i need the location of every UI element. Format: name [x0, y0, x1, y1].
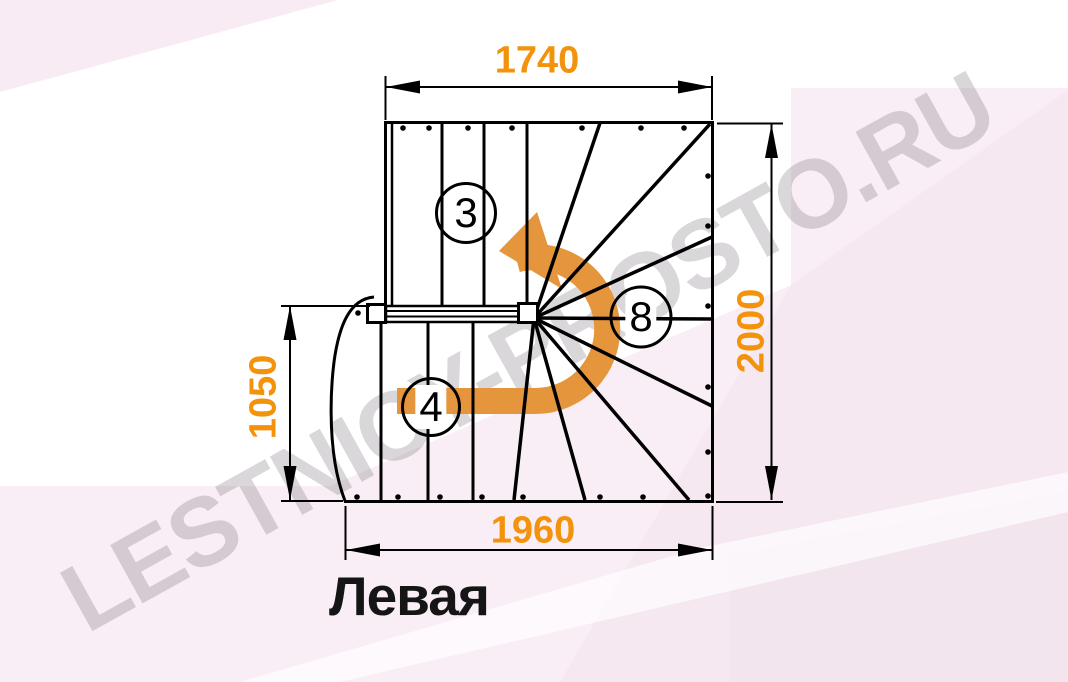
- dim-arrowhead: [765, 124, 778, 158]
- curved-side-board: [331, 297, 374, 501]
- dimension-top: [386, 76, 713, 120]
- stair-plan-drawing: [0, 0, 1068, 682]
- upper-flight-step-count: 3: [450, 191, 481, 235]
- dim-arrowhead: [678, 81, 712, 94]
- dimension-top-value: 1740: [495, 40, 580, 83]
- dimension-right-value: 2000: [731, 289, 774, 374]
- winder-step-count: 8: [625, 295, 656, 339]
- newel-post: [519, 304, 538, 323]
- lower-flight-step-count: 4: [415, 385, 446, 429]
- handrail-beam: [368, 304, 538, 323]
- dim-arrowhead: [678, 544, 712, 557]
- dim-arrowhead: [765, 466, 778, 500]
- dim-arrowhead: [284, 466, 297, 500]
- dimension-left-value: 1050: [243, 355, 286, 440]
- stair-plan-canvas: LESTNICY-PROSTO.RU: [0, 0, 1068, 682]
- left-post: [368, 305, 386, 323]
- stair-variant-caption: Левая: [329, 564, 489, 628]
- dim-arrowhead: [386, 81, 420, 94]
- dim-arrowhead: [284, 306, 297, 340]
- dim-arrowhead: [346, 544, 380, 557]
- dimension-bottom-value: 1960: [491, 510, 576, 553]
